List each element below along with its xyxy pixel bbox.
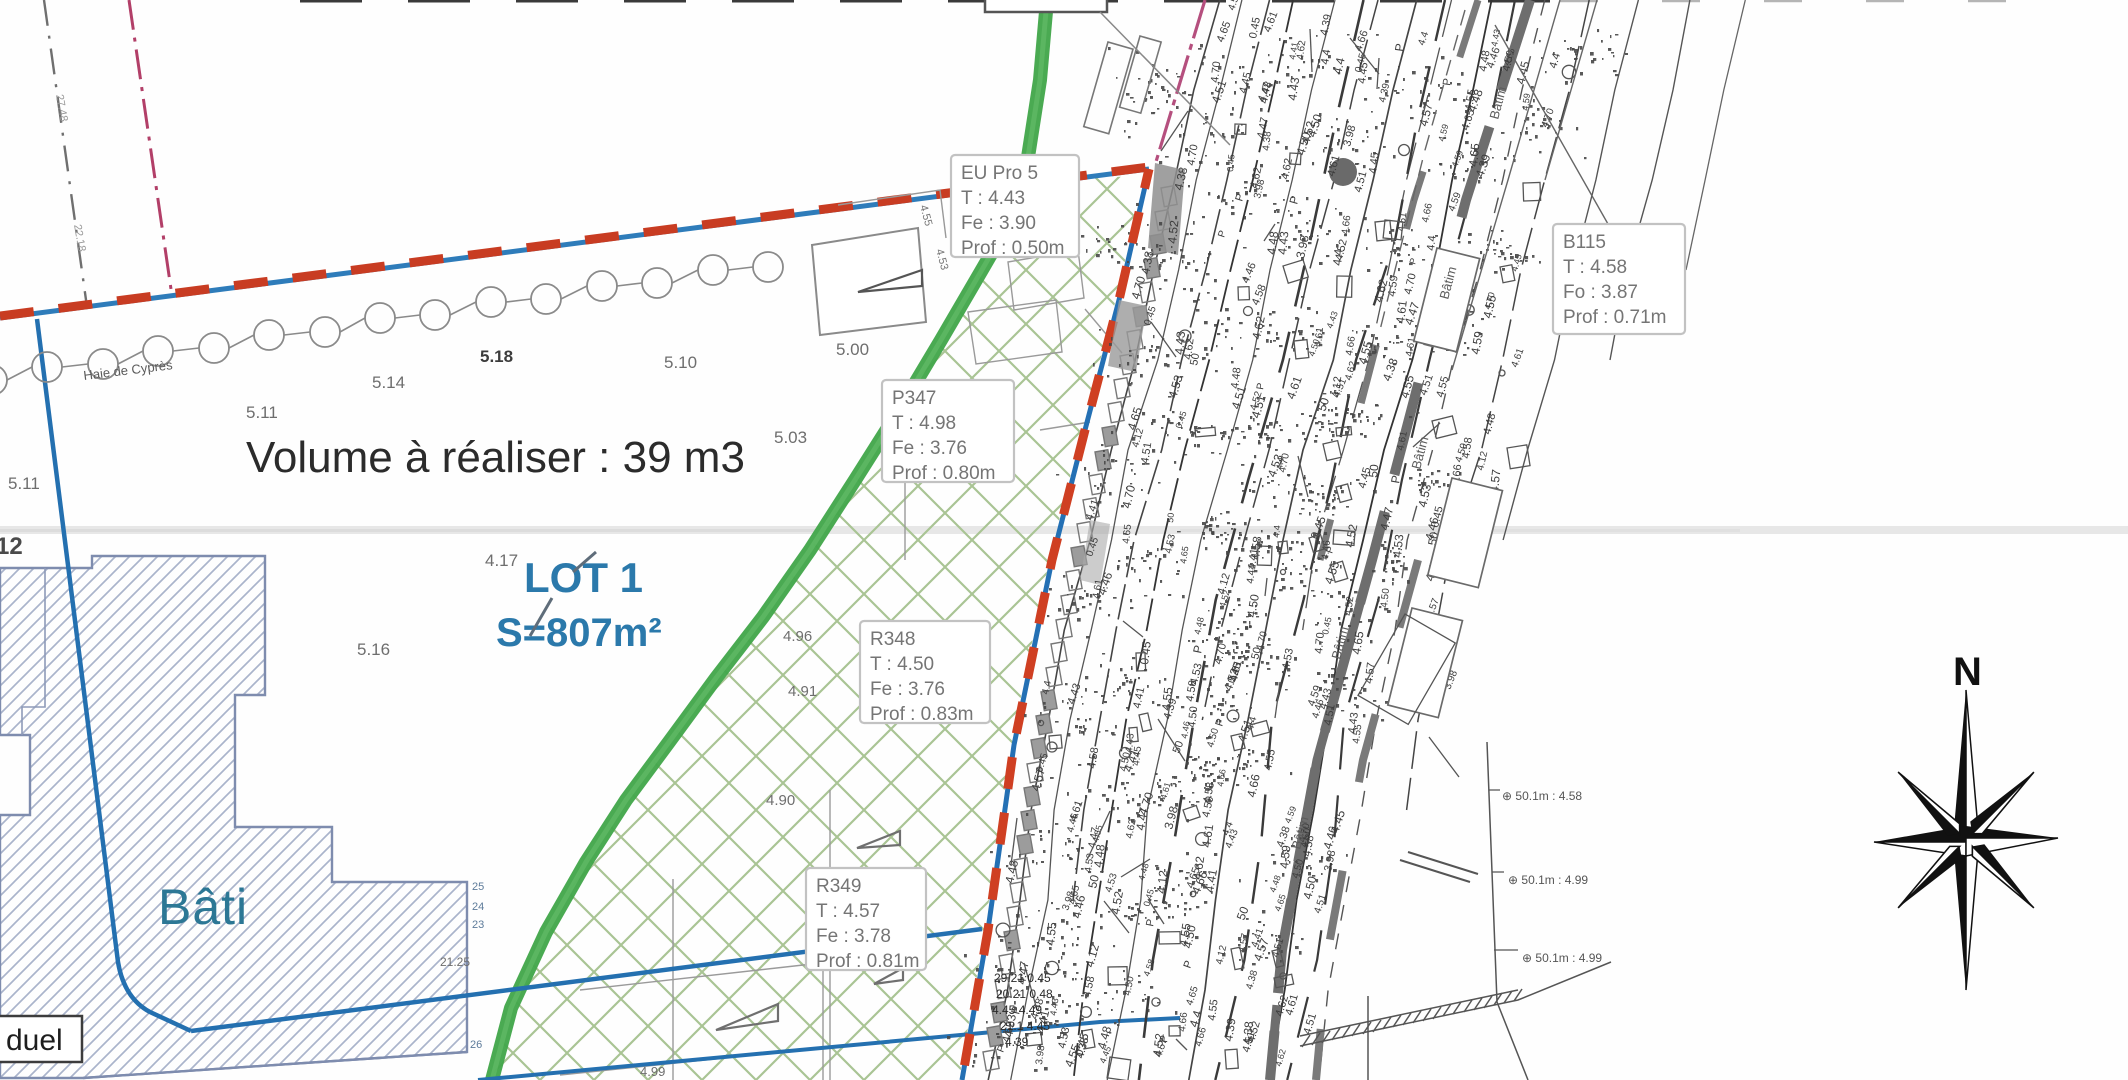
svg-text:4.4: 4.4 <box>1319 48 1333 65</box>
svg-text:25: 25 <box>472 881 484 893</box>
svg-text:23: 23 <box>472 919 484 931</box>
svg-text:P347: P347 <box>892 388 936 409</box>
svg-text:Prof : 0.80m: Prof : 0.80m <box>892 463 996 484</box>
svg-text:50: 50 <box>1165 512 1176 523</box>
svg-text:⊕ 50.1m : 4.99: ⊕ 50.1m : 4.99 <box>1508 873 1588 887</box>
svg-text:5.18: 5.18 <box>480 347 513 366</box>
svg-text:4.50: 4.50 <box>1379 587 1392 608</box>
svg-text:4.45: 4.45 <box>1131 745 1144 766</box>
svg-text:T : 4.98: T : 4.98 <box>892 413 956 434</box>
svg-text:Fo : 3.87: Fo : 3.87 <box>1563 282 1638 303</box>
svg-text:R349: R349 <box>816 876 861 897</box>
svg-text:4.91: 4.91 <box>788 683 817 700</box>
svg-text:Fe : 3.76: Fe : 3.76 <box>870 679 945 700</box>
svg-text:Fe : 3.90: Fe : 3.90 <box>961 213 1036 234</box>
svg-text:Fe : 3.76: Fe : 3.76 <box>892 438 967 459</box>
svg-text:5.11: 5.11 <box>246 403 278 422</box>
svg-text:4.17: 4.17 <box>485 551 518 570</box>
svg-text:4.52: 4.52 <box>1165 219 1181 244</box>
svg-text:4.99: 4.99 <box>640 1064 665 1079</box>
svg-text:12: 12 <box>0 533 23 560</box>
svg-text:Prof : 0.50m: Prof : 0.50m <box>961 238 1065 259</box>
svg-text:Volume à réaliser : 39 m3: Volume à réaliser : 39 m3 <box>246 433 745 482</box>
svg-text:Bâti: Bâti <box>158 879 248 935</box>
svg-text:4.53: 4.53 <box>1390 533 1406 558</box>
svg-text:5.14: 5.14 <box>372 373 405 392</box>
svg-text:Prof : 0.83m: Prof : 0.83m <box>870 704 974 725</box>
svg-text:⊕ 50.1m : 4.58: ⊕ 50.1m : 4.58 <box>1502 789 1582 803</box>
svg-text:T : 4.50: T : 4.50 <box>870 654 934 675</box>
svg-text:5.00: 5.00 <box>836 340 869 359</box>
svg-text:29.21 0.45: 29.21 0.45 <box>994 971 1051 985</box>
svg-text:5.11: 5.11 <box>8 474 40 493</box>
svg-text:4.55: 4.55 <box>1043 921 1059 946</box>
svg-text:EU Pro 5: EU Pro 5 <box>961 163 1038 184</box>
svg-text:duel: duel <box>6 1024 63 1057</box>
svg-text:4.90: 4.90 <box>766 792 795 809</box>
svg-text:Prof : 0.71m: Prof : 0.71m <box>1563 307 1667 328</box>
svg-text:4.50: 4.50 <box>1186 706 1200 729</box>
svg-text:B115: B115 <box>1563 232 1606 253</box>
svg-text:T : 4.58: T : 4.58 <box>1563 257 1627 278</box>
svg-text:4.43: 4.43 <box>1275 230 1291 255</box>
svg-text:21.25: 21.25 <box>440 955 470 969</box>
svg-text:20.21 0.48: 20.21 0.48 <box>996 987 1053 1001</box>
svg-text:Prof : 0.81m: Prof : 0.81m <box>816 951 920 972</box>
svg-text:5.03: 5.03 <box>774 428 807 447</box>
svg-text:4.39: 4.39 <box>1005 1035 1029 1049</box>
svg-text:S=807m²: S=807m² <box>496 611 662 655</box>
svg-text:N: N <box>1953 650 1982 694</box>
svg-text:4.65: 4.65 <box>1121 523 1134 544</box>
svg-text:21.1 4.45: 21.1 4.45 <box>1000 1019 1050 1033</box>
svg-text:5.16: 5.16 <box>357 640 390 659</box>
svg-text:T : 4.57: T : 4.57 <box>816 901 880 922</box>
svg-text:4.4: 4.4 <box>1271 525 1282 538</box>
svg-text:24: 24 <box>472 901 484 913</box>
svg-text:R348: R348 <box>870 629 915 650</box>
svg-text:4.96: 4.96 <box>783 628 812 645</box>
svg-text:⊕ 50.1m : 4.99: ⊕ 50.1m : 4.99 <box>1522 951 1602 965</box>
svg-text:50: 50 <box>1188 352 1202 366</box>
svg-text:4.66: 4.66 <box>1177 1011 1190 1032</box>
svg-text:T : 4.43: T : 4.43 <box>961 188 1025 209</box>
svg-text:Fe : 3.78: Fe : 3.78 <box>816 926 891 947</box>
svg-text:4.45 4.49: 4.45 4.49 <box>992 1003 1042 1017</box>
svg-text:5.10: 5.10 <box>664 353 697 372</box>
svg-text:26: 26 <box>470 1039 482 1051</box>
